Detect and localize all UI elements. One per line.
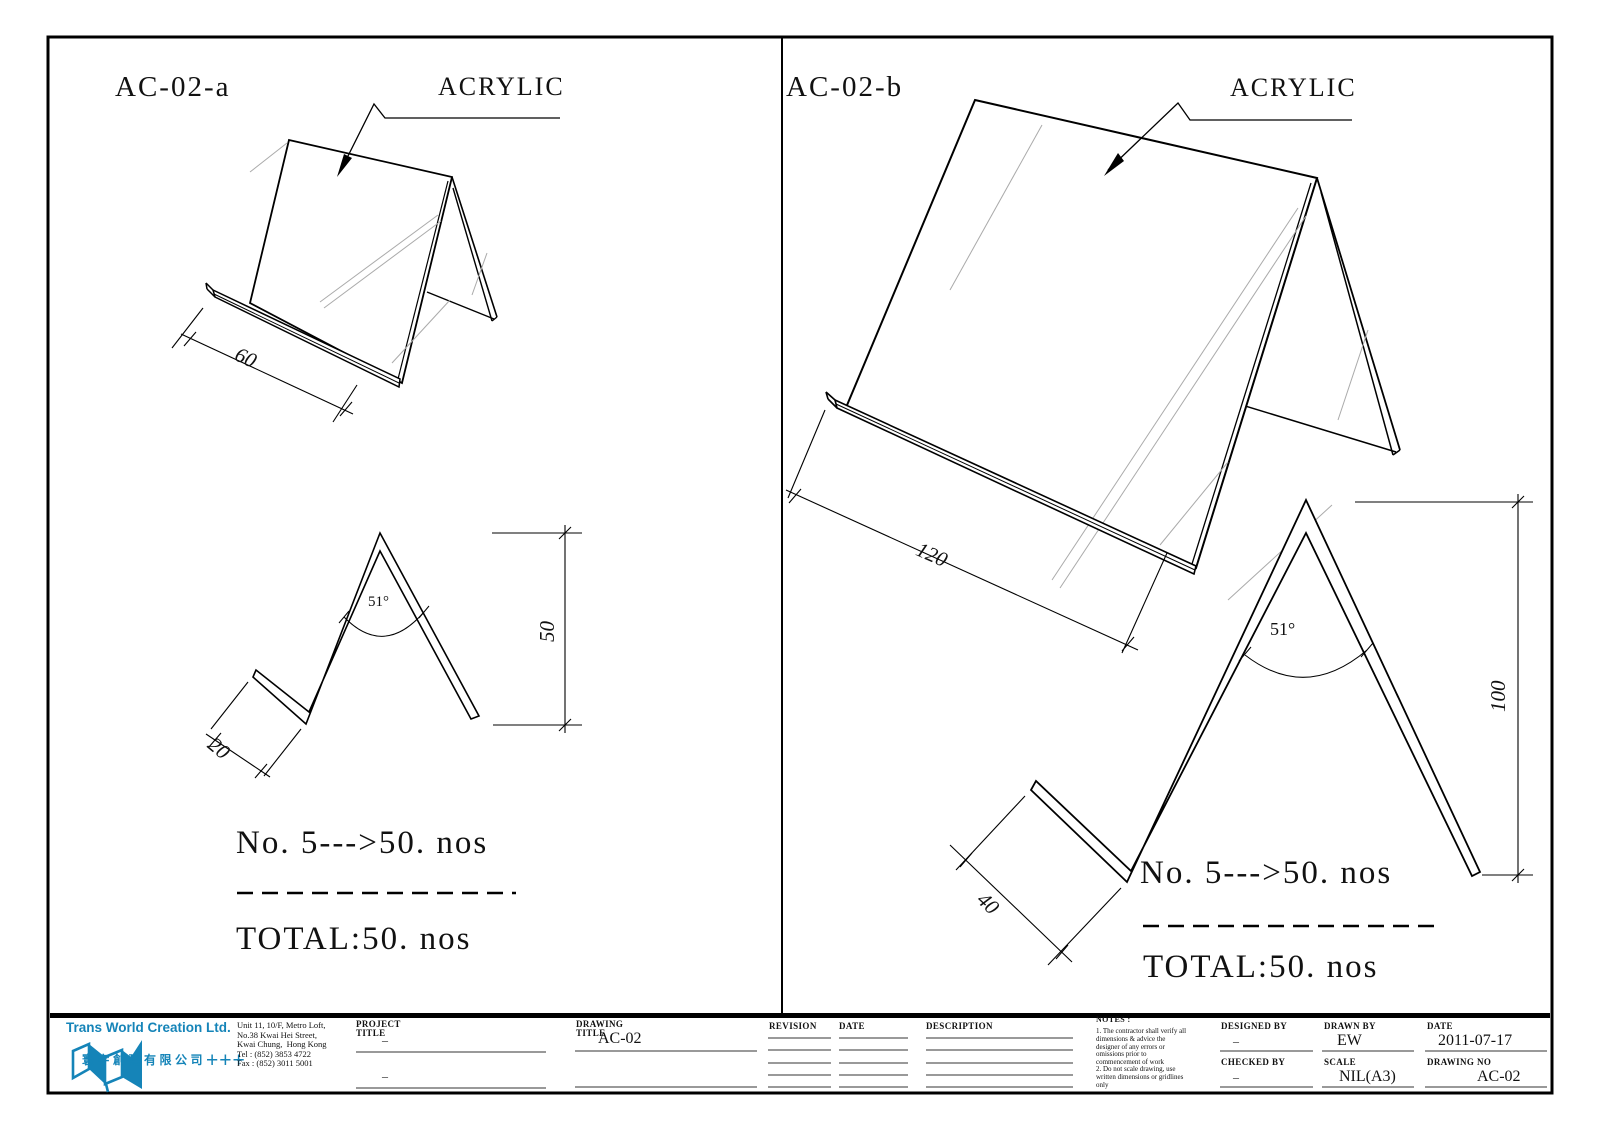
notes-item-2: 2. Do not scale drawing, use written dim… — [1096, 1066, 1190, 1089]
left-total-line: TOTAL:50. nos — [236, 922, 471, 957]
description-label: DESCRIPTION — [926, 1022, 993, 1031]
left-qty-line: No. 5--->50. nos — [236, 826, 488, 861]
left-view-label: AC-02-a — [115, 72, 230, 102]
right-dim-height: 100 — [1487, 681, 1509, 713]
date-col-label: DATE — [839, 1022, 865, 1031]
date-label: DATE — [1427, 1022, 1453, 1031]
left-dim-angle: 51° — [368, 595, 389, 611]
scale-label: SCALE — [1324, 1058, 1356, 1067]
scale-value: NIL(A3) — [1339, 1069, 1396, 1086]
revision-label: REVISION — [769, 1022, 817, 1031]
date-value: 2011-07-17 — [1438, 1033, 1512, 1050]
project-title-value1: – — [382, 1034, 388, 1047]
drawn-by-label: DRAWN BY — [1324, 1022, 1376, 1031]
drawn-by-value: EW — [1337, 1033, 1362, 1050]
right-view-label: AC-02-b — [786, 72, 903, 102]
company-name-cn: 寰宇創建有限公司+++ — [66, 1033, 246, 1089]
right-profile-view — [950, 494, 1533, 965]
project-title-value2: – — [382, 1070, 388, 1083]
drawing-no-label: DRAWING NO — [1427, 1058, 1491, 1067]
drawing-no-value: AC-02 — [1477, 1069, 1521, 1086]
left-profile-view — [206, 525, 582, 778]
company-cn-text: 寰宇創建有限公司 — [82, 1053, 206, 1067]
drawing-title-value: AC-02 — [598, 1031, 642, 1048]
left-iso-view — [172, 104, 560, 422]
designed-by-value: – — [1233, 1035, 1239, 1048]
company-address: Unit 11, 10/F, Metro Loft, No.38 Kwai He… — [237, 1021, 326, 1069]
project-title-label: PROJECT TITLE — [356, 1020, 401, 1039]
notes-item-1: 1. The contractor shall verify all dimen… — [1096, 1028, 1190, 1067]
right-material-label: ACRYLIC — [1230, 74, 1357, 101]
right-total-line: TOTAL:50. nos — [1143, 950, 1378, 985]
notes-label: NOTES : — [1096, 1016, 1131, 1024]
right-qty-line: No. 5--->50. nos — [1140, 856, 1392, 891]
right-dim-angle: 51° — [1270, 620, 1295, 639]
checked-by-label: CHECKED BY — [1221, 1058, 1285, 1067]
left-dim-height: 50 — [536, 621, 558, 642]
designed-by-label: DESIGNED BY — [1221, 1022, 1287, 1031]
checked-by-value: – — [1233, 1071, 1239, 1084]
left-material-label: ACRYLIC — [438, 73, 565, 100]
right-iso-view — [786, 100, 1400, 653]
drawing-sheet: AC-02-a ACRYLIC 60 51° 50 20 No. 5--->50… — [0, 0, 1600, 1131]
